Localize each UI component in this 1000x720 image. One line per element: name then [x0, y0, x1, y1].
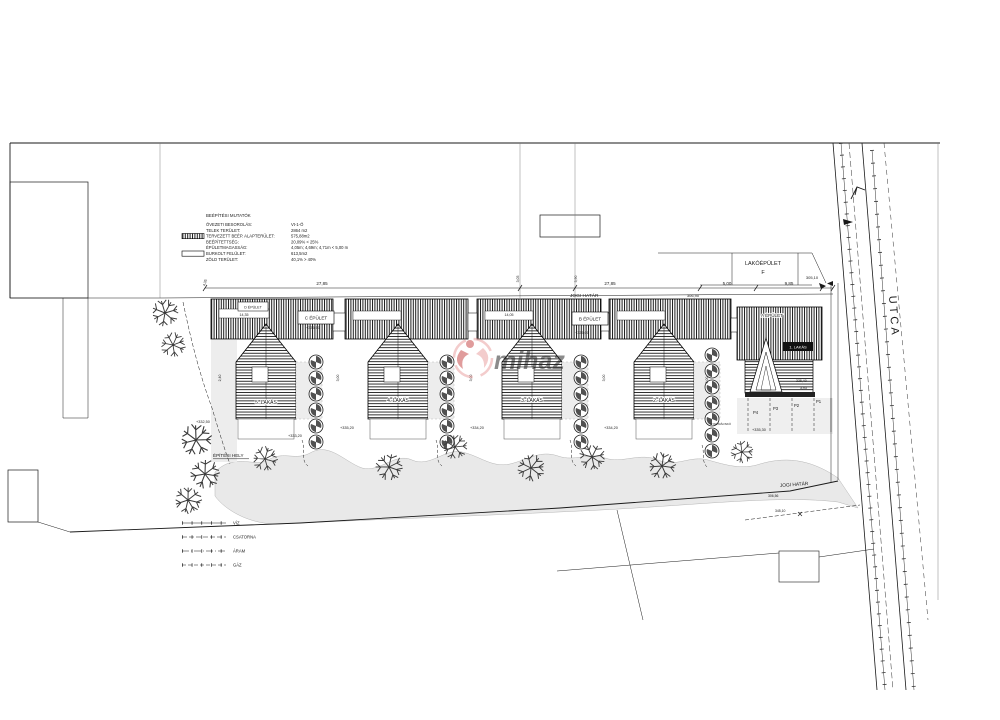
stats-row-label: ÉPÜLETMAGASSÁG: [206, 245, 247, 250]
annotation-label: 3,93 [800, 386, 807, 390]
terraces [238, 419, 692, 439]
annotation-label: 6,00 [705, 377, 709, 384]
annotation-label: 306,90 [687, 293, 700, 298]
stats-row-label: BURKOLT FELÜLET: [206, 251, 246, 256]
annotation-label: P3 [773, 406, 779, 411]
stats-swatch-paved [182, 251, 204, 256]
legend-item-label: GÁZ [233, 563, 242, 568]
site-plan-drawing: D ÉPÜLET C ÉPÜLET B ÉPÜLET A ÉPÜLET 1. L… [0, 0, 1000, 720]
stats-row-label: ZÖLD TERÜLET: [206, 257, 238, 262]
stats-row-label: TELEK TERÜLET: [206, 228, 240, 233]
annotation-label: +335,20 [340, 426, 354, 430]
stats-row-value: 613,5m2 [291, 251, 308, 256]
street [833, 143, 928, 690]
annotation-label: 345,10 [775, 509, 785, 513]
stats-row-value: 2864 m2 [291, 228, 308, 233]
site-plan-sheet: D ÉPÜLET C ÉPÜLET B ÉPÜLET A ÉPÜLET 1. L… [0, 0, 1000, 720]
annotation-label: 14,35 [240, 313, 249, 317]
stats-row-value: Vt-1-Ö [291, 222, 304, 227]
stats-row-label: BEÉPÍTETTSÉG: [206, 239, 239, 244]
watermark-text: mihaz [494, 347, 565, 375]
extension-lines [160, 143, 575, 298]
street-name-label: UTCA [886, 295, 901, 338]
annotation-label: +334,20 [470, 426, 484, 430]
annotation-label: 305,10 [806, 275, 819, 280]
stats-swatch-built [182, 234, 204, 239]
annotation-label: 2. LAKÁS [653, 397, 675, 404]
stats-block: BEÉPÍTÉSI MUTATÓK ÖVEZETI BESOROLÁS:Vt-1… [182, 213, 349, 262]
neighbor-house-letter: F [761, 270, 765, 276]
annotation-label: 5,00 [723, 281, 732, 286]
stats-row-label: TERVEZETT BEÉP. ALAPTERÜLET: [206, 234, 275, 239]
annotation-label: 5. LAKÁS [255, 399, 277, 406]
stats-rows: ÖVEZETI BESOROLÁS:Vt-1-ÖTELEK TERÜLET:28… [206, 222, 349, 262]
legend-item-label: CSATORNA [233, 535, 256, 540]
building-a-label: A ÉPÜLET [761, 312, 783, 318]
building-c-label: C ÉPÜLET [305, 315, 328, 321]
annotation-label: 14,05 [505, 313, 514, 317]
neighbor-building-outline [540, 215, 600, 237]
annotation-label: 27,85 [316, 281, 328, 286]
stats-title: BEÉPÍTÉSI MUTATÓK [206, 213, 251, 218]
annotation-label: 3,05 [516, 276, 520, 283]
unit1-label: 1. LAKÁS [789, 345, 807, 350]
annotation-label: +335,00 [575, 331, 589, 335]
annotation-label: 4. LAKÁS [387, 397, 409, 404]
stats-row-value: 20,09% < 25% [291, 239, 319, 244]
annotation-label: 3. LAKÁS [521, 397, 543, 404]
annotation-label: 335,40 [796, 379, 807, 383]
annotation-label: 27,85 [604, 281, 616, 286]
building-area-label: ÉPÍTÉSI HELY [213, 452, 244, 458]
annotation-label: +335,50 [306, 326, 320, 330]
stats-row-value: 575,88m2 [291, 234, 310, 239]
street-arrow-symbol [843, 219, 853, 225]
legal-boundary-label-top: JOGI HATÁR [570, 292, 599, 299]
neighbor-parcel-f [658, 253, 826, 285]
annotation-label: +335,30 [752, 428, 766, 432]
annotation-label: 5,90 [574, 276, 578, 283]
legend-item-label: ÁRAM [233, 549, 246, 554]
annotation-label: +334,20 [604, 426, 618, 430]
legend-item-label: VÍZ [233, 521, 240, 526]
annotation-label: P4 [753, 410, 759, 415]
annotation-label: +333,20 [288, 434, 302, 438]
annotation-label: 9,85 [785, 281, 794, 286]
annotation-label: +332,50 [196, 420, 210, 424]
annotation-label: 306,56 [768, 494, 778, 498]
building-b-label: B ÉPÜLET [579, 316, 601, 322]
annotation-label: 3,00 [602, 375, 606, 382]
stats-row-value: 40,1% > 40% [291, 257, 316, 262]
annotation-label: GYEPRÁCSKŐ [710, 421, 732, 426]
building-d-label: D ÉPÜLET [244, 305, 262, 310]
annotation-label: P1 [816, 399, 822, 404]
annotation-label: 2,40 [218, 375, 222, 382]
stats-row-value: 4,05m; 4,69m; 4,71m < 5,00 m [291, 245, 349, 250]
neighbor-house-label: LAKÓÉPÜLET [745, 260, 782, 267]
annotation-label: 3,00 [336, 375, 340, 382]
stats-row-label: ÖVEZETI BESOROLÁS: [206, 222, 252, 227]
annotation-label: P2 [794, 403, 800, 408]
